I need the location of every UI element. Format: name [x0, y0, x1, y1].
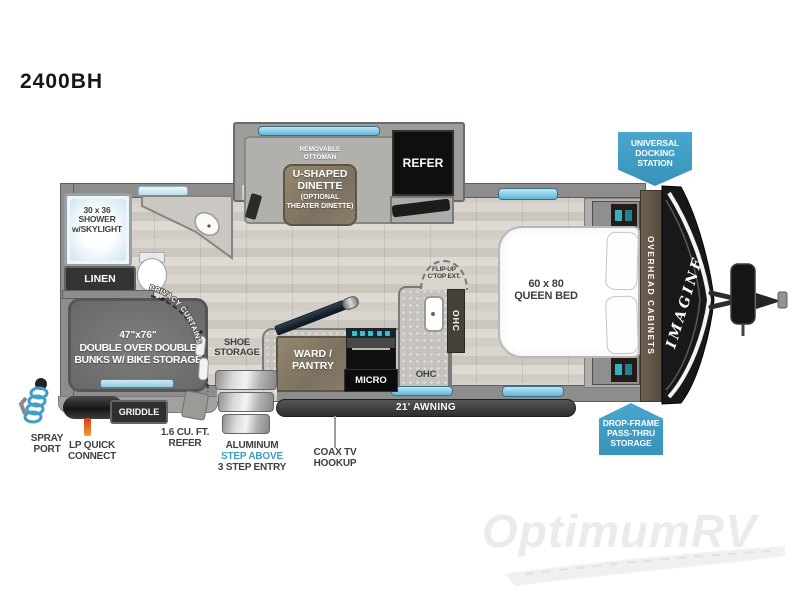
watermark-road	[495, 542, 795, 590]
propane-cover	[731, 264, 755, 324]
bedroom-window-bottom	[502, 386, 564, 397]
linen-label: LINEN	[84, 273, 116, 285]
ohc-side-label: OHC	[448, 290, 464, 352]
floorplan-page: 2400BH REMOVABLE OTTOMAN U-SHAPED DINETT…	[0, 0, 800, 600]
coax-label: COAX TV HOOKUP	[306, 447, 364, 469]
spray-port	[18, 374, 68, 436]
kitchen-window	[391, 386, 453, 396]
lp-quick-connect-label: LP QUICK CONNECT	[62, 440, 122, 462]
slide-window	[258, 126, 380, 136]
dinette-line2: DINETTE	[279, 181, 361, 193]
ohc-side-cabinet: OHC	[447, 289, 465, 353]
page-title: 2400BH	[20, 70, 150, 93]
entry-steps	[215, 370, 279, 440]
front-cap: IMAGINE	[615, 178, 800, 418]
mini-refer-chute	[181, 390, 209, 421]
docking-station-label: UNIVERSAL DOCKING STATION	[631, 138, 679, 168]
dinette-line3: (OPTIONAL	[279, 194, 361, 203]
griddle-label: GRIDDLE	[119, 407, 160, 417]
mini-refer-label: 1.6 CU. FT. REFER	[154, 427, 216, 449]
entry-line3: 3 STEP ENTRY	[210, 462, 294, 473]
ottoman-label: REMOVABLE OTTOMAN	[288, 146, 352, 162]
entry-line2: STEP ABOVE	[210, 451, 294, 462]
coax-pointer-line	[334, 416, 336, 448]
flip-up-label: FLIP-UP C'TOP EXT.	[423, 266, 465, 280]
griddle-badge: GRIDDLE	[110, 400, 168, 424]
stove-oven	[347, 348, 395, 370]
lp-nozzle	[84, 418, 91, 436]
sink-drain	[431, 312, 435, 316]
awning-bar: 21' AWNING	[276, 399, 576, 417]
hitch-coupler	[756, 293, 781, 309]
privacy-curtain-label: PRIVACY CURTAINS	[149, 283, 204, 345]
drop-frame-label: DROP-FRAME PASS-THRU STORAGE	[603, 418, 660, 448]
linen-cabinet: LINEN	[64, 266, 136, 292]
ohc-lower-label: OHC	[402, 370, 450, 380]
entry-steps-label: ALUMINUM STEP ABOVE 3 STEP ENTRY	[210, 440, 294, 473]
shower-label: 30 x 36 SHOWER w/SKYLIGHT	[68, 206, 126, 234]
shoe-storage-label: SHOE STORAGE	[210, 338, 264, 359]
dinette-label: U-SHAPED DINETTE (OPTIONAL THEATER DINET…	[279, 169, 361, 211]
dinette-line4: THEATER DINETTE)	[279, 203, 361, 211]
dinette-line1: U-SHAPED	[279, 169, 361, 181]
svg-text:PRIVACY CURTAINS: PRIVACY CURTAINS	[149, 283, 204, 345]
microwave: MICRO	[344, 369, 398, 392]
bedroom-window-top	[498, 188, 558, 200]
stove-knobs	[347, 329, 395, 338]
awning-label: 21' AWNING	[277, 400, 575, 416]
bed-label: 60 x 80 QUEEN BED	[508, 278, 584, 302]
micro-label: MICRO	[345, 370, 397, 391]
refer-label: REFER	[392, 156, 454, 170]
ward-pantry-label: WARD / PANTRY	[282, 348, 344, 372]
stove	[346, 328, 396, 372]
entry-line1: ALUMINUM	[210, 440, 294, 451]
